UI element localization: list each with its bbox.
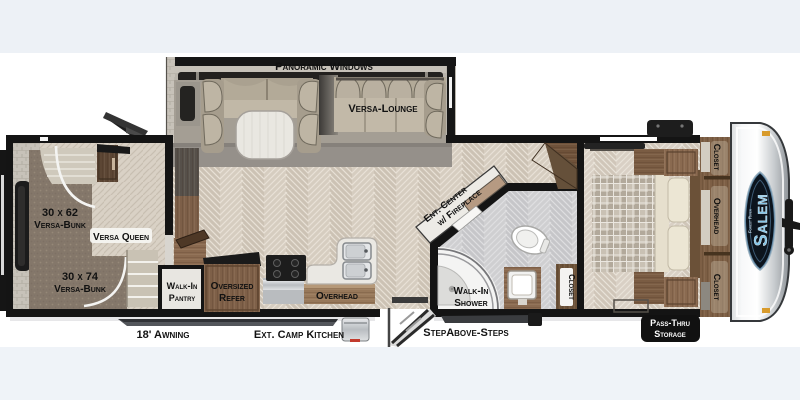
svg-text:Overhead: Overhead (712, 198, 722, 235)
svg-text:Overhead: Overhead (316, 291, 358, 302)
svg-text:Shower: Shower (454, 298, 488, 309)
svg-text:Closet: Closet (712, 274, 722, 301)
svg-text:Forest River: Forest River (748, 208, 753, 233)
svg-text:Pass-Thru: Pass-Thru (650, 318, 690, 328)
svg-text:18' Awning: 18' Awning (137, 329, 190, 341)
svg-text:Closet: Closet (712, 144, 722, 171)
svg-text:Versa-Bunk: Versa-Bunk (34, 220, 86, 231)
svg-text:Panoramic Windows: Panoramic Windows (275, 61, 373, 73)
svg-text:Versa-Lounge: Versa-Lounge (348, 103, 418, 115)
svg-text:Ext. Camp Kitchen: Ext. Camp Kitchen (254, 329, 344, 341)
svg-text:30 x 62: 30 x 62 (42, 207, 78, 219)
svg-text:Walk-In: Walk-In (167, 281, 198, 291)
svg-text:Refer: Refer (219, 293, 245, 304)
svg-text:30 x 74: 30 x 74 (62, 271, 99, 283)
svg-text:Versa-Bunk: Versa-Bunk (54, 284, 106, 295)
svg-text:Walk-In: Walk-In (454, 286, 489, 297)
svg-text:Closet: Closet (567, 274, 576, 300)
svg-text:Versa Queen: Versa Queen (93, 232, 149, 243)
svg-text:Salem: Salem (751, 194, 771, 247)
svg-text:Storage: Storage (654, 329, 686, 339)
svg-text:Oversized: Oversized (211, 281, 254, 292)
svg-text:StepAbove-Steps: StepAbove-Steps (423, 327, 509, 339)
svg-text:Pantry: Pantry (169, 293, 195, 303)
